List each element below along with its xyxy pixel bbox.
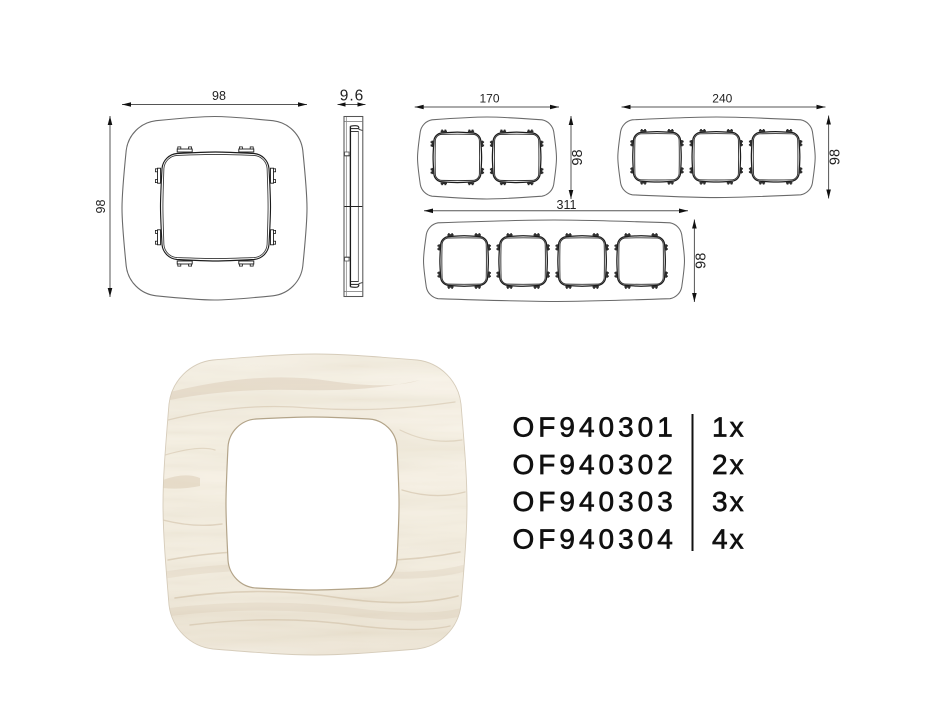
svg-text:311: 311 [557,198,577,212]
svg-text:3x: 3x [712,486,746,517]
svg-text:2x: 2x [712,449,746,480]
svg-text:4x: 4x [712,523,746,554]
svg-text:98: 98 [828,149,844,165]
svg-text:OF940303: OF940303 [513,486,677,517]
svg-text:240: 240 [712,92,732,106]
svg-text:9.6: 9.6 [340,88,365,105]
svg-text:OF940304: OF940304 [513,523,677,554]
svg-text:170: 170 [479,92,499,106]
svg-text:OF940302: OF940302 [513,449,677,480]
svg-text:OF940301: OF940301 [513,412,677,443]
svg-text:1x: 1x [712,412,746,443]
svg-text:98: 98 [94,200,108,214]
svg-text:98: 98 [212,89,226,103]
svg-text:98: 98 [570,149,586,165]
svg-text:98: 98 [693,253,709,269]
